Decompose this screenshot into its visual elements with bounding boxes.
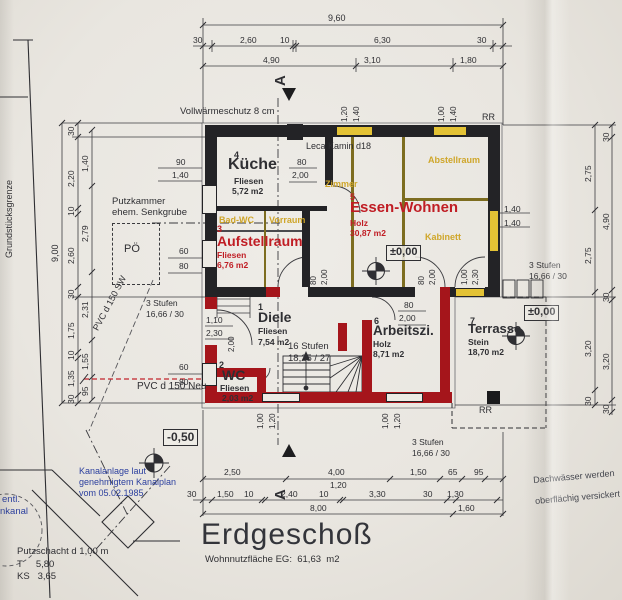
wall-exterior-left [205, 137, 217, 297]
new-wall-diele-stub [266, 287, 280, 297]
wall-kueche-bottom [217, 206, 327, 211]
new-wall-stair [338, 323, 347, 351]
room-name-wc: WC [222, 367, 245, 383]
chimney [287, 124, 303, 140]
poe-label: PÖ [124, 243, 140, 256]
window-bottom-2 [386, 393, 423, 402]
dim-right-o0: 30 [602, 133, 612, 142]
new-wall-wc-right [257, 368, 266, 392]
section-letter-top: A [272, 75, 289, 86]
level-zero-terrace: ±0,00 [524, 305, 559, 321]
pvc-neu-label: PVC d 150 Neu [137, 381, 207, 393]
dachwasser-note: Dachwässer werden oberflächig versickert [522, 458, 621, 518]
room-area-terrasse: 18,70 m2 [468, 348, 504, 358]
dim-wb2-b: 1,20 [393, 413, 402, 429]
dim-right-o4: 30 [602, 405, 612, 414]
level-minus-entrance: -0,50 [163, 429, 198, 446]
old-room-zimmer: Zimmer [325, 179, 358, 189]
kanal-note-2: genehmigtem Kanalplan [79, 477, 176, 487]
dim-left-o8: 30 [67, 395, 77, 404]
dim-top2-3: 6,30 [374, 36, 391, 46]
dachwasser-2: oberflächig versickert [535, 489, 621, 506]
page-subtitle: Wohnnutzfläche EG: 61,63 m2 [205, 555, 339, 566]
steps3-bottom-1: 3 Stufen [412, 438, 444, 448]
steps3-left-1: 3 Stufen [146, 299, 178, 309]
dim-left-i1: 2,79 [81, 225, 91, 242]
window-aufstellraum [202, 240, 217, 268]
old-room-vorraum: Vorraum [269, 215, 305, 225]
steps3-right-1: 3 Stufen [529, 261, 561, 271]
dim-b3-1: 1,60 [458, 504, 475, 514]
dim-b2-3: 2,40 [281, 490, 298, 500]
dim-top2-0: 30 [193, 36, 202, 46]
dim-b1-sub: 1,20 [330, 481, 347, 491]
dim-b2-5: 3,30 [369, 490, 386, 500]
dim-top3-0: 4,90 [263, 56, 280, 66]
dim-dd1-b: 2,00 [320, 269, 329, 285]
dim-wk-a: 90 [176, 158, 185, 168]
dim-left-o6: 10 [67, 351, 77, 360]
dim-wt1-b: 1,40 [352, 106, 361, 122]
old-room-kabinett: Kabinett [425, 232, 461, 242]
downspout-square [487, 391, 500, 404]
dim-left-o4: 30 [67, 290, 77, 299]
wall-mid-center [308, 287, 415, 297]
dim-right-o1: 4,90 [602, 213, 612, 230]
dim-left-o5: 1,75 [67, 322, 77, 339]
dim-left-o3: 2,60 [67, 247, 77, 264]
dim-b3-0: 8,00 [310, 504, 327, 514]
dim-b2-6: 30 [423, 490, 432, 500]
dim-top2-1: 2,60 [240, 36, 257, 46]
dim-wa-b: 80 [179, 262, 188, 272]
old-room-abstellraum: Abstellraum [428, 155, 480, 165]
dim-left-o2: 10 [67, 207, 77, 216]
kanal-frag-2: nkanal [0, 507, 28, 518]
dim-top3-2: 1,80 [460, 56, 477, 66]
kanal-frag-1: entl. [2, 495, 20, 506]
putzschacht-3: KS 3,65 [17, 572, 56, 583]
window-top-2 [433, 126, 467, 136]
room-area-arbeitszimmer: 8,71 m2 [373, 350, 404, 360]
dim-right-i3: 30 [584, 397, 594, 406]
putzkammer-2: ehem. Senkgrube [112, 208, 187, 219]
putzschacht-2: T 5,80 [17, 560, 54, 571]
dim-b1-1: 4,00 [328, 468, 345, 478]
room-area-aufstellraum: 6,76 m2 [217, 261, 248, 271]
dim-right-o3: 3,20 [602, 353, 612, 370]
note-rr-top: RR [482, 112, 495, 122]
dim-right-i1: 2,75 [584, 247, 594, 264]
window-bottom-1 [262, 393, 300, 402]
new-wall-arbeitszimmer-left [362, 320, 372, 392]
room-area-kueche: 5,72 m2 [232, 187, 263, 197]
note-kamin: Leca Kamin d18 [306, 141, 371, 151]
room-name-aufstellraum: Aufstellraum [217, 233, 303, 249]
dim-dk-b: 2,00 [292, 171, 309, 181]
dim-wt1-a: 1,20 [340, 106, 349, 122]
dim-wt2-a: 1,00 [437, 106, 446, 122]
dim-b2-2: 10 [244, 490, 253, 500]
stair-note-1: 16 Stufen [288, 342, 329, 353]
note-rr-bottom: RR [479, 405, 492, 415]
note-vollwaermeschutz: Vollwärmeschutz 8 cm [180, 107, 275, 118]
dim-b1-0: 2,50 [224, 468, 241, 478]
dim-wk-b: 1,40 [172, 171, 189, 181]
room-name-kueche: Küche [228, 156, 277, 174]
dim-top2-2: 10 [280, 36, 289, 46]
dim-dd2-a: 80 [417, 276, 426, 285]
kanal-note-3: vom 05.02.1985 [79, 488, 144, 498]
window-kueche [202, 185, 217, 214]
level-marker-essen [362, 257, 390, 285]
dim-b2-1: 1,50 [217, 490, 234, 500]
dachwasser-1: Dachwässer werden [533, 468, 615, 485]
dim-de-b: 2,30 [206, 329, 223, 339]
steps3-left-2: 16,66 / 30 [146, 310, 184, 320]
section-arrow-top [282, 88, 296, 101]
room-name-terrasse: Terrasse [468, 322, 521, 337]
dim-wb2-a: 1,00 [381, 413, 390, 429]
dim-b1-3: 65 [448, 468, 457, 478]
dim-left-i4: 95 [81, 387, 91, 396]
steps3-bottom-2: 16,66 / 30 [412, 449, 450, 459]
room-area-wc: 2,03 m2 [222, 394, 253, 404]
dim-wb1-b: 1,20 [268, 413, 277, 429]
dim-left-o7: 1,35 [67, 370, 77, 387]
dim-right-o2: 30 [602, 293, 612, 302]
room-mat-diele: Fliesen [258, 327, 287, 337]
floor-plan-scan: 9,60 30 2,60 10 6,30 30 4,90 3,10 1,80 A… [0, 0, 622, 600]
section-arrow-bottom [282, 444, 296, 457]
old-room-badwc: Bad-WC [219, 215, 254, 225]
dim-top3-1: 3,10 [364, 56, 381, 66]
room-name-diele: Diele [258, 309, 291, 325]
dim-left-i3: 1,55 [81, 353, 91, 370]
room-area-diele: 7,54 m2 [258, 338, 289, 348]
dim-de-a: 1,10 [206, 316, 223, 326]
dim-left-o0: 30 [67, 127, 77, 136]
dim-wt2-b: 1,40 [449, 106, 458, 122]
window-top-1 [336, 126, 373, 136]
old-wall-badwc-bottom [217, 230, 302, 232]
dim-right-i2: 3,20 [584, 340, 594, 357]
dim-dt-a: 1,00 [460, 269, 469, 285]
dim-wb1-a: 1,00 [256, 413, 265, 429]
new-wall-entry-stub [205, 297, 217, 309]
sewer-sw-line [89, 280, 153, 431]
dim-b1-2: 1,50 [410, 468, 427, 478]
dim-da-a: 80 [404, 301, 413, 311]
steps3-right-2: 16,66 / 30 [529, 272, 567, 282]
dim-left-o1: 2,20 [67, 170, 77, 187]
dim-b2-4: 10 [319, 490, 328, 500]
dim-left-total: 9,00 [50, 244, 60, 262]
dim-top2-4: 30 [477, 36, 486, 46]
dim-wa-a: 60 [179, 247, 188, 257]
new-wall-arbeitszimmer-right [440, 287, 450, 392]
dim-left-i0: 1,40 [81, 155, 91, 172]
wall-mid-right-b [485, 287, 500, 297]
dim-wr-b: 1,40 [504, 219, 521, 229]
dim-de-h: 2,00 [227, 336, 236, 352]
stair-walkline-dot [304, 386, 309, 391]
putzschacht-diamond [102, 496, 154, 548]
dim-b1-4: 95 [474, 468, 483, 478]
dim-b2-7: 1,30 [447, 490, 464, 500]
dim-ww-a: 60 [179, 363, 188, 373]
dim-left-i2: 2,31 [81, 301, 91, 318]
dim-wr-a: 1,40 [504, 205, 521, 215]
room-name-arbeitszimmer: Arbeitszi. [373, 323, 434, 339]
stair-note-2: 18,25 / 27 [288, 354, 330, 365]
terrace-door-glazed [455, 288, 485, 297]
dim-dt-b: 2,30 [471, 269, 480, 285]
dim-dd2-b: 2,00 [428, 269, 437, 285]
terrace-steps [503, 280, 543, 298]
property-line-label: Grundstücksgrenze [4, 180, 14, 258]
kanal-note-1: Kanalanlage laut [79, 466, 146, 476]
room-area-essen: 30,87 m2 [350, 229, 386, 239]
dim-dd1-a: 80 [309, 276, 318, 285]
putzschacht-1: Putzschacht d 1,00 m [17, 547, 108, 558]
dim-b2-0: 30 [187, 490, 196, 500]
dim-right-i0: 2,75 [584, 165, 594, 182]
dim-dk-a: 80 [297, 158, 306, 168]
page-title: Erdgeschoß [201, 518, 373, 553]
dim-top-total: 9,60 [328, 13, 346, 23]
level-zero-essen: ±0,00 [386, 245, 421, 261]
room-name-essen: Essen-Wohnen [350, 199, 458, 216]
window-right [489, 210, 499, 252]
